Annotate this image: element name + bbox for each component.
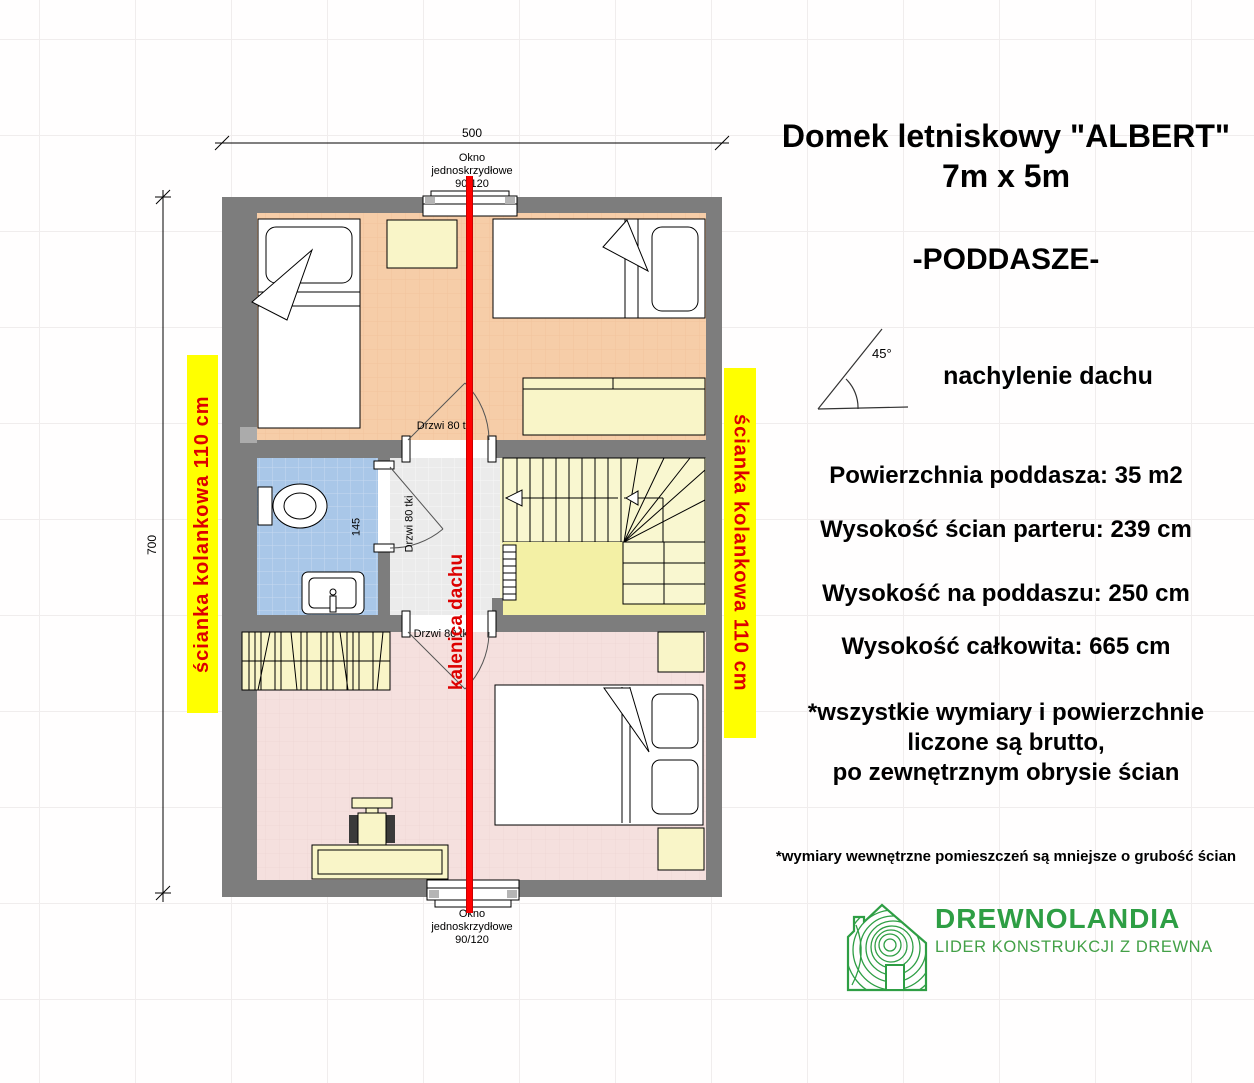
note-line2: liczone są brutto, <box>758 728 1254 758</box>
note-interior-dimensions: *wymiary wewnętrzne pomieszczeń są mniej… <box>758 848 1254 865</box>
floor-name: -PODDASZE- <box>758 243 1254 277</box>
spec-ground-wall-height: Wysokość ścian parteru: 239 cm <box>758 516 1254 544</box>
cabinet-under-stairs <box>623 542 705 604</box>
dimension-width-label: 500 <box>222 126 722 140</box>
note-line1: *wszystkie wymiary i powierzchnie <box>758 698 1254 728</box>
nightstand-bottom-2 <box>658 828 704 870</box>
spec-attic-area: Powierzchnia poddasza: 35 m2 <box>758 462 1254 490</box>
dresser-top-room <box>523 378 705 435</box>
door-mid-label: Drzwi 80 tki <box>404 496 417 553</box>
roof-ridge-label: kalenica dachu <box>446 554 468 690</box>
office-chair <box>349 798 395 845</box>
wardrobe <box>242 632 390 690</box>
stairs-railing <box>503 545 516 600</box>
knee-wall-label-left: ścianka kolankowa 110 cm <box>187 355 218 713</box>
knee-wall-label-right: ścianka kolankowa 110 cm <box>724 368 756 738</box>
roof-pitch-label: nachylenie dachu <box>898 362 1198 391</box>
roof-ridge-line <box>466 176 473 913</box>
nightstand-bottom-1 <box>658 632 704 672</box>
sheet-title-line2: 7m x 5m <box>758 156 1254 196</box>
roof-angle-value: 45° <box>872 346 892 361</box>
sink <box>302 572 364 614</box>
logo-house-icon <box>846 904 940 998</box>
floorplan-sheet: kalenica dachu ścianka kolankowa 110 cm … <box>0 0 1254 1083</box>
bed-double <box>495 685 703 825</box>
logo-tagline: LIDER KONSTRUKCJI Z DREWNA <box>935 938 1213 957</box>
roof-pitch-icon <box>818 329 908 409</box>
note-gross-dimensions: *wszystkie wymiary i powierzchnie liczon… <box>758 698 1254 788</box>
window-bottom-label-line3: 90/120 <box>392 934 552 947</box>
window-bottom <box>427 880 519 907</box>
sheet-title-line1: Domek letniskowy "ALBERT" <box>758 116 1254 156</box>
window-top-label-line1: Okno <box>392 152 552 165</box>
note-line3: po zewnętrznym obrysie ścian <box>758 758 1254 788</box>
window-bottom-label-line2: jednoskrzydłowe <box>392 921 552 934</box>
nightstand-top <box>387 220 457 268</box>
dimension-height-label: 700 <box>145 535 159 555</box>
dimension-bathroom-label: 145 <box>351 518 364 536</box>
logo-company-name: DREWNOLANDIA <box>935 903 1180 935</box>
bathroom-door-opening <box>378 467 390 548</box>
bed-single-left <box>252 219 360 428</box>
desk <box>312 845 448 879</box>
spec-attic-height: Wysokość na poddaszu: 250 cm <box>758 580 1254 608</box>
wall-segment-light <box>240 427 257 443</box>
door-opening-top <box>408 440 490 458</box>
toilet <box>258 484 327 528</box>
bed-single-right <box>493 219 705 318</box>
window-bottom-label: Okno jednoskrzydłowe 90/120 <box>392 908 552 947</box>
sheet-title: Domek letniskowy "ALBERT" 7m x 5m <box>758 116 1254 196</box>
spec-total-height: Wysokość całkowita: 665 cm <box>758 633 1254 661</box>
staircase <box>503 458 705 615</box>
